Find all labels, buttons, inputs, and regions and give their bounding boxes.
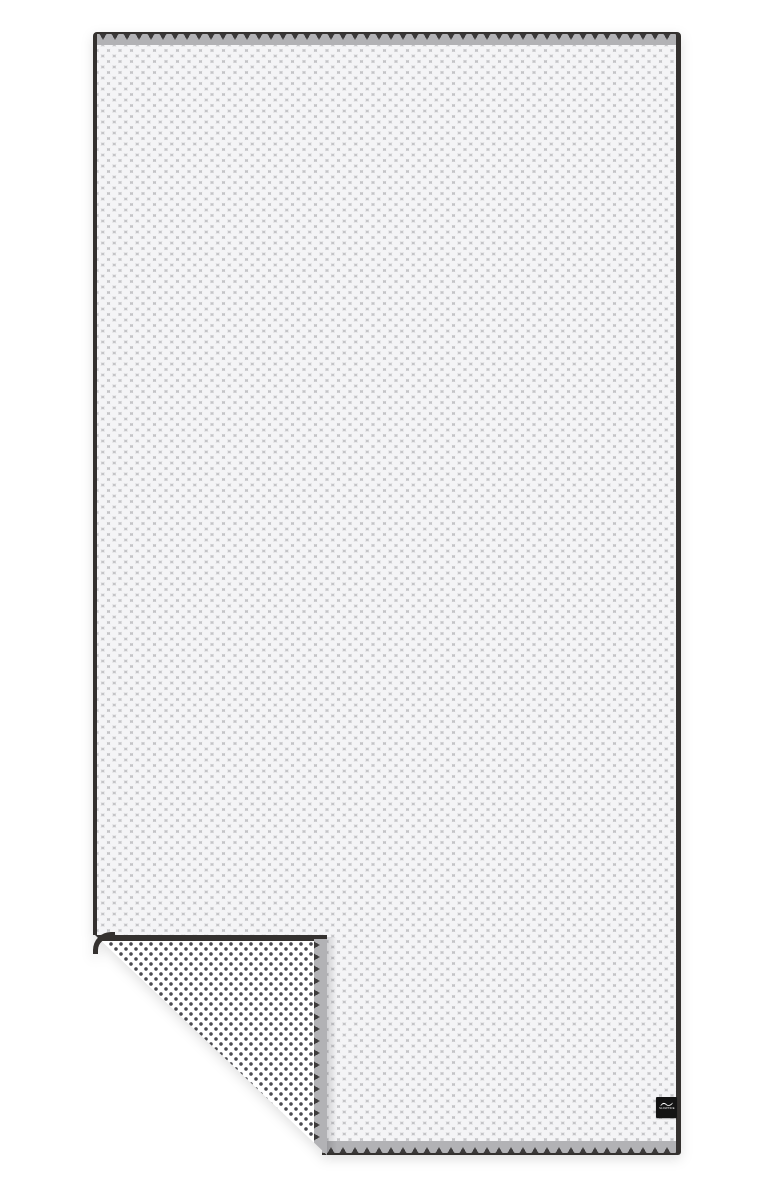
- brand-tag-label: SLOWTIDE: [659, 1107, 675, 1110]
- product-photo: SLOWTIDE: [0, 0, 780, 1196]
- wave-logo-icon: [660, 1101, 673, 1107]
- fold-crease-shading: [93, 935, 327, 1155]
- towel-top-hem-stitching: [97, 34, 676, 45]
- towel: SLOWTIDE: [0, 0, 780, 1196]
- folded-corner-side-stitching: [314, 939, 327, 1155]
- folded-corner-top-trim: [93, 935, 327, 941]
- folded-corner-reverse-side: [93, 935, 327, 1155]
- towel-bottom-hem-stitching: [97, 1141, 676, 1153]
- brand-tag: SLOWTIDE: [656, 1097, 677, 1118]
